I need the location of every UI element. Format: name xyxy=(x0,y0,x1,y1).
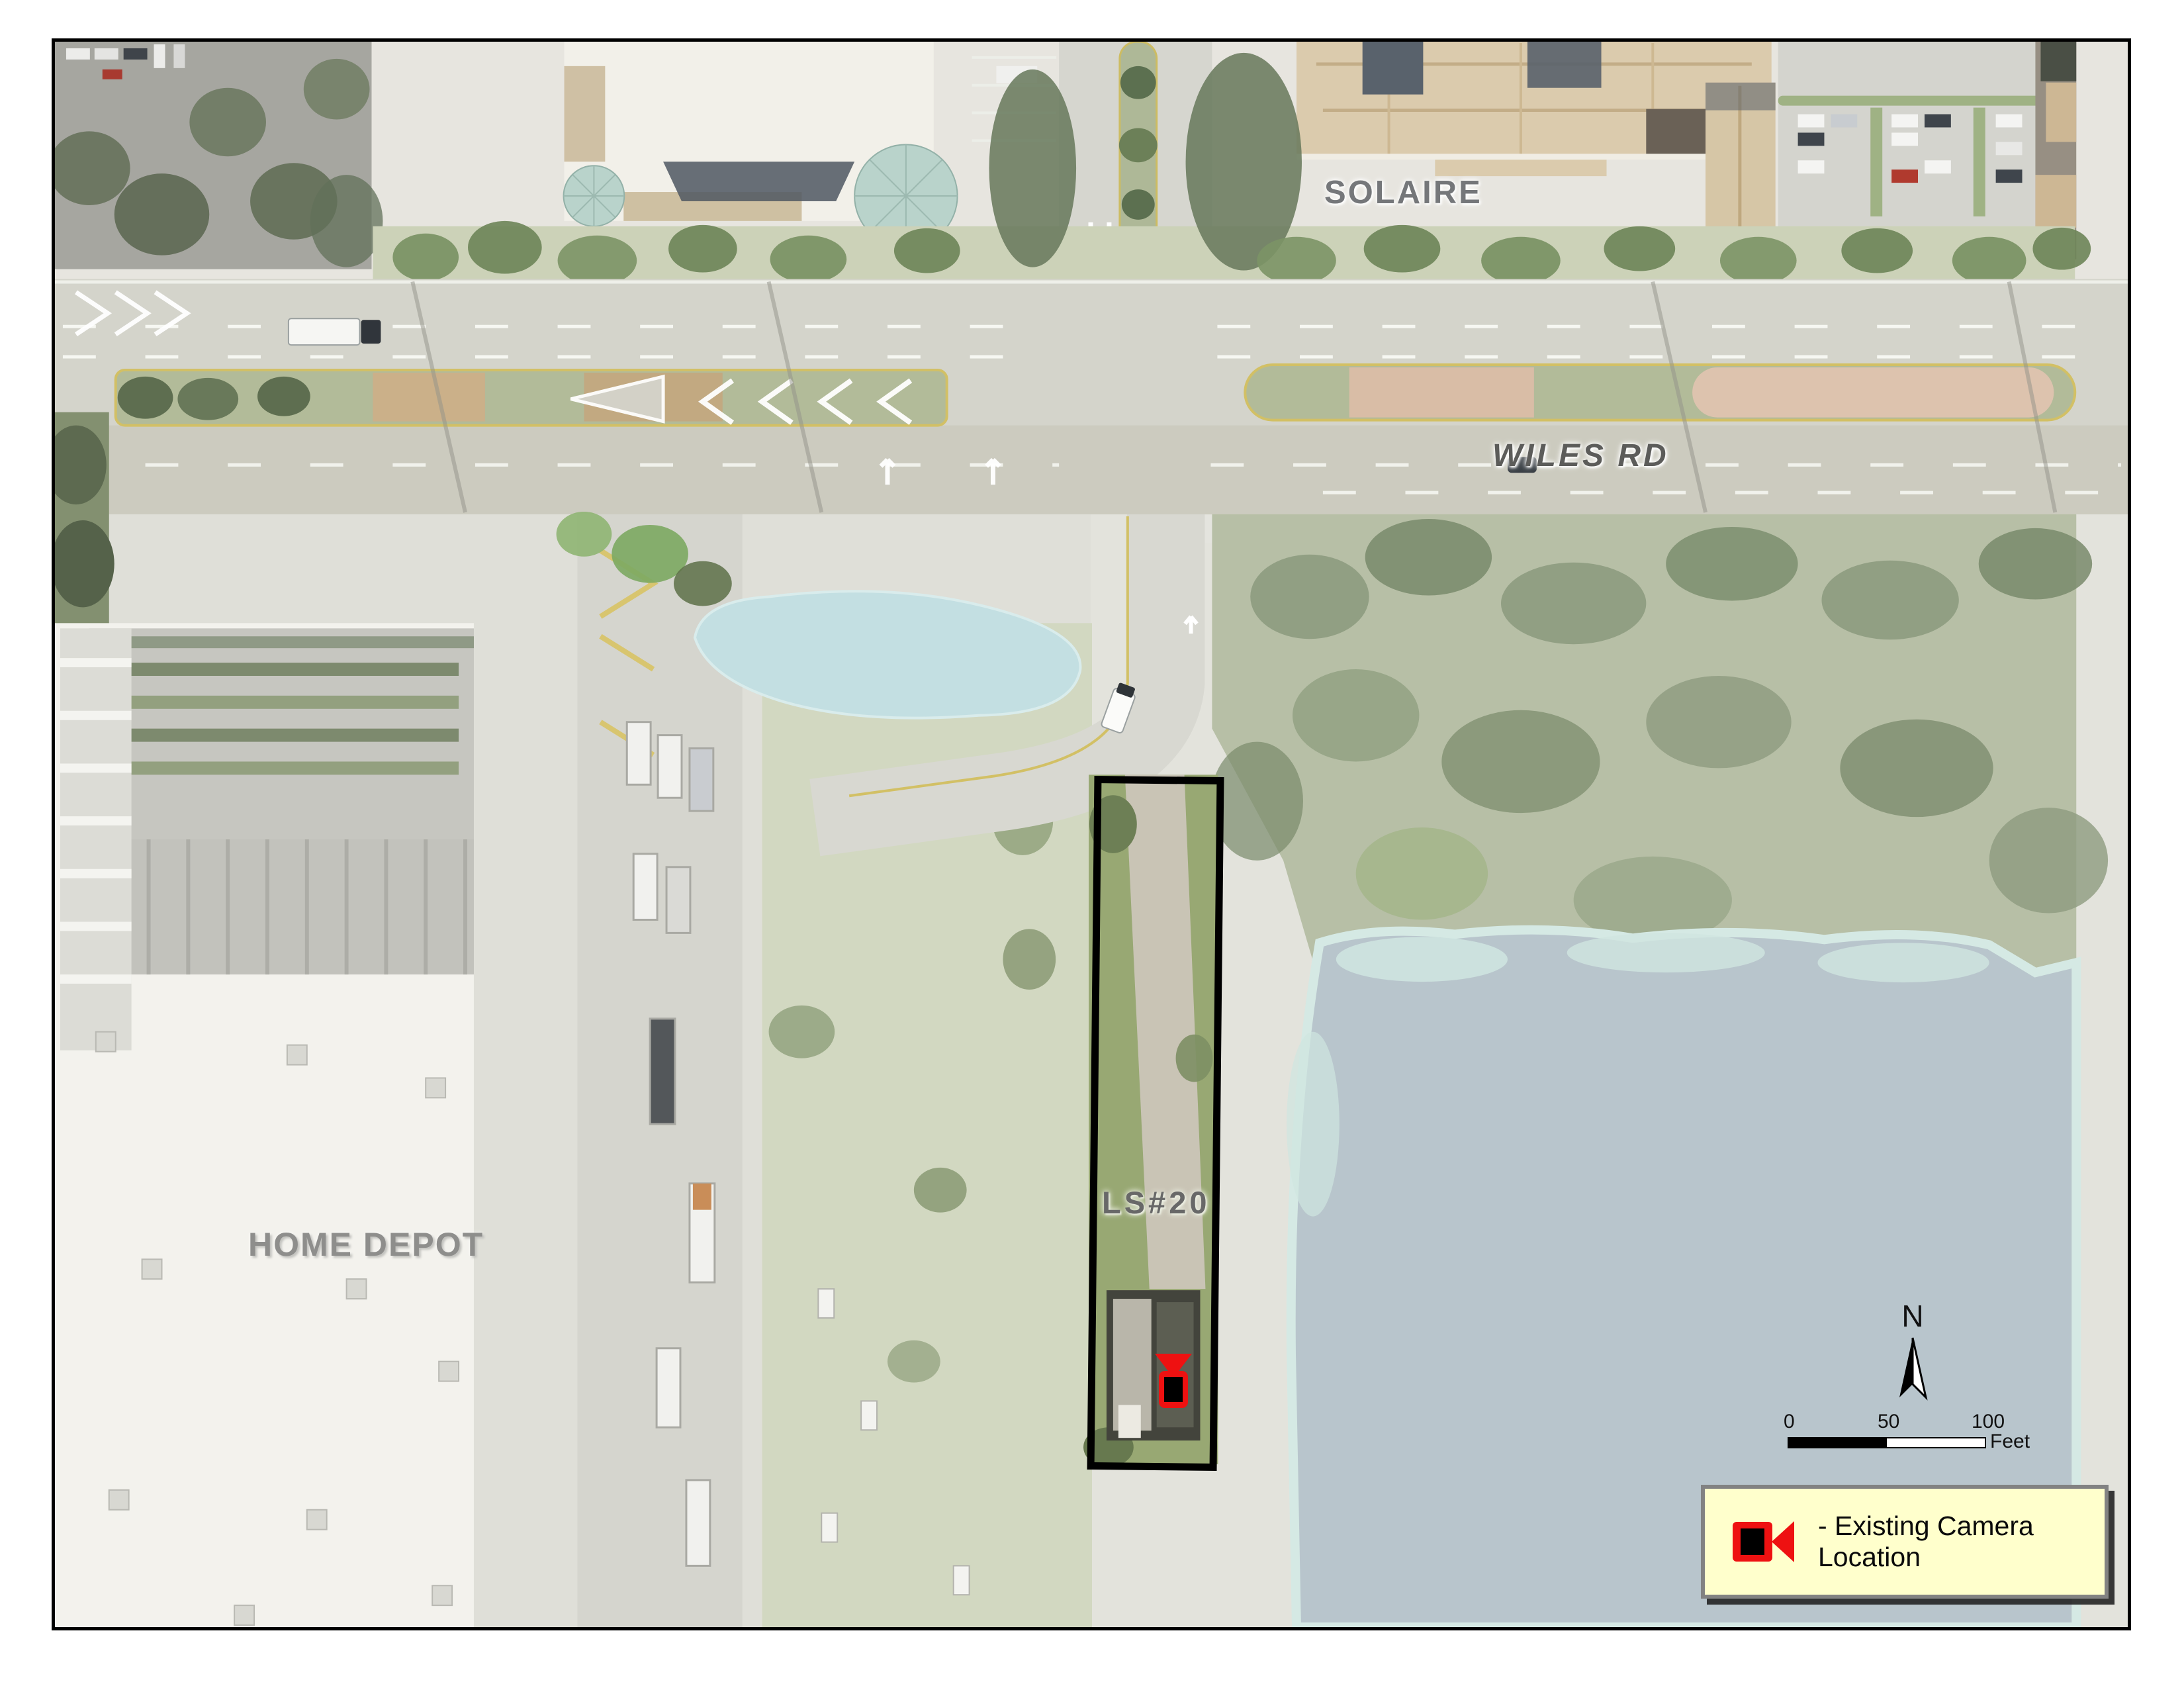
map-frame: SOLAIRE WILES RD HOME DEPOT LS#20 N 0 50… xyxy=(52,38,2131,1630)
legend-camera-body-icon xyxy=(1733,1522,1772,1562)
scale-unit: Feet xyxy=(1990,1430,2030,1453)
camera-body-icon xyxy=(1159,1371,1188,1408)
north-label: N xyxy=(1883,1298,1942,1334)
legend-box: - Existing Camera Location xyxy=(1701,1485,2109,1599)
legend-camera-icon xyxy=(1733,1521,1794,1562)
north-arrow-icon xyxy=(1891,1336,1934,1403)
clubhouse-building xyxy=(564,42,958,248)
page: SOLAIRE WILES RD HOME DEPOT LS#20 N 0 50… xyxy=(0,0,2184,1688)
legend-camera-cone-icon xyxy=(1772,1521,1794,1562)
wiles-rd-label: WILES RD xyxy=(1492,438,1669,474)
legend-item-label: - Existing Camera Location xyxy=(1818,1511,2105,1573)
road-median-west xyxy=(116,370,947,426)
scale-bar-graphic xyxy=(1788,1437,1986,1448)
truck-on-road xyxy=(289,318,381,345)
existing-camera-marker xyxy=(1155,1354,1192,1409)
home-depot-building xyxy=(55,623,474,1627)
scale-bar-black-half xyxy=(1789,1438,1887,1447)
camera-cone-icon xyxy=(1155,1354,1192,1372)
road-median-east xyxy=(1245,365,2075,420)
scale-bar: 0 50 100 Feet xyxy=(1781,1411,2019,1453)
wiles-road xyxy=(55,279,2128,515)
home-depot-label: HOME DEPOT xyxy=(248,1225,484,1264)
southwest-zone xyxy=(55,412,1092,1627)
parking-lot-top-left xyxy=(55,42,383,269)
ls20-label: LS#20 xyxy=(1102,1184,1210,1221)
legend-camera-lens-icon xyxy=(1741,1528,1764,1555)
scale-tick-0: 0 xyxy=(1784,1411,1795,1433)
scale-tick-50: 50 xyxy=(1878,1411,1899,1433)
scale-tick-100: 100 xyxy=(1972,1411,2005,1433)
vegetation-band-east xyxy=(1210,514,2108,992)
camera-lens-icon xyxy=(1164,1377,1183,1402)
solaire-label: SOLAIRE xyxy=(1324,174,1482,211)
